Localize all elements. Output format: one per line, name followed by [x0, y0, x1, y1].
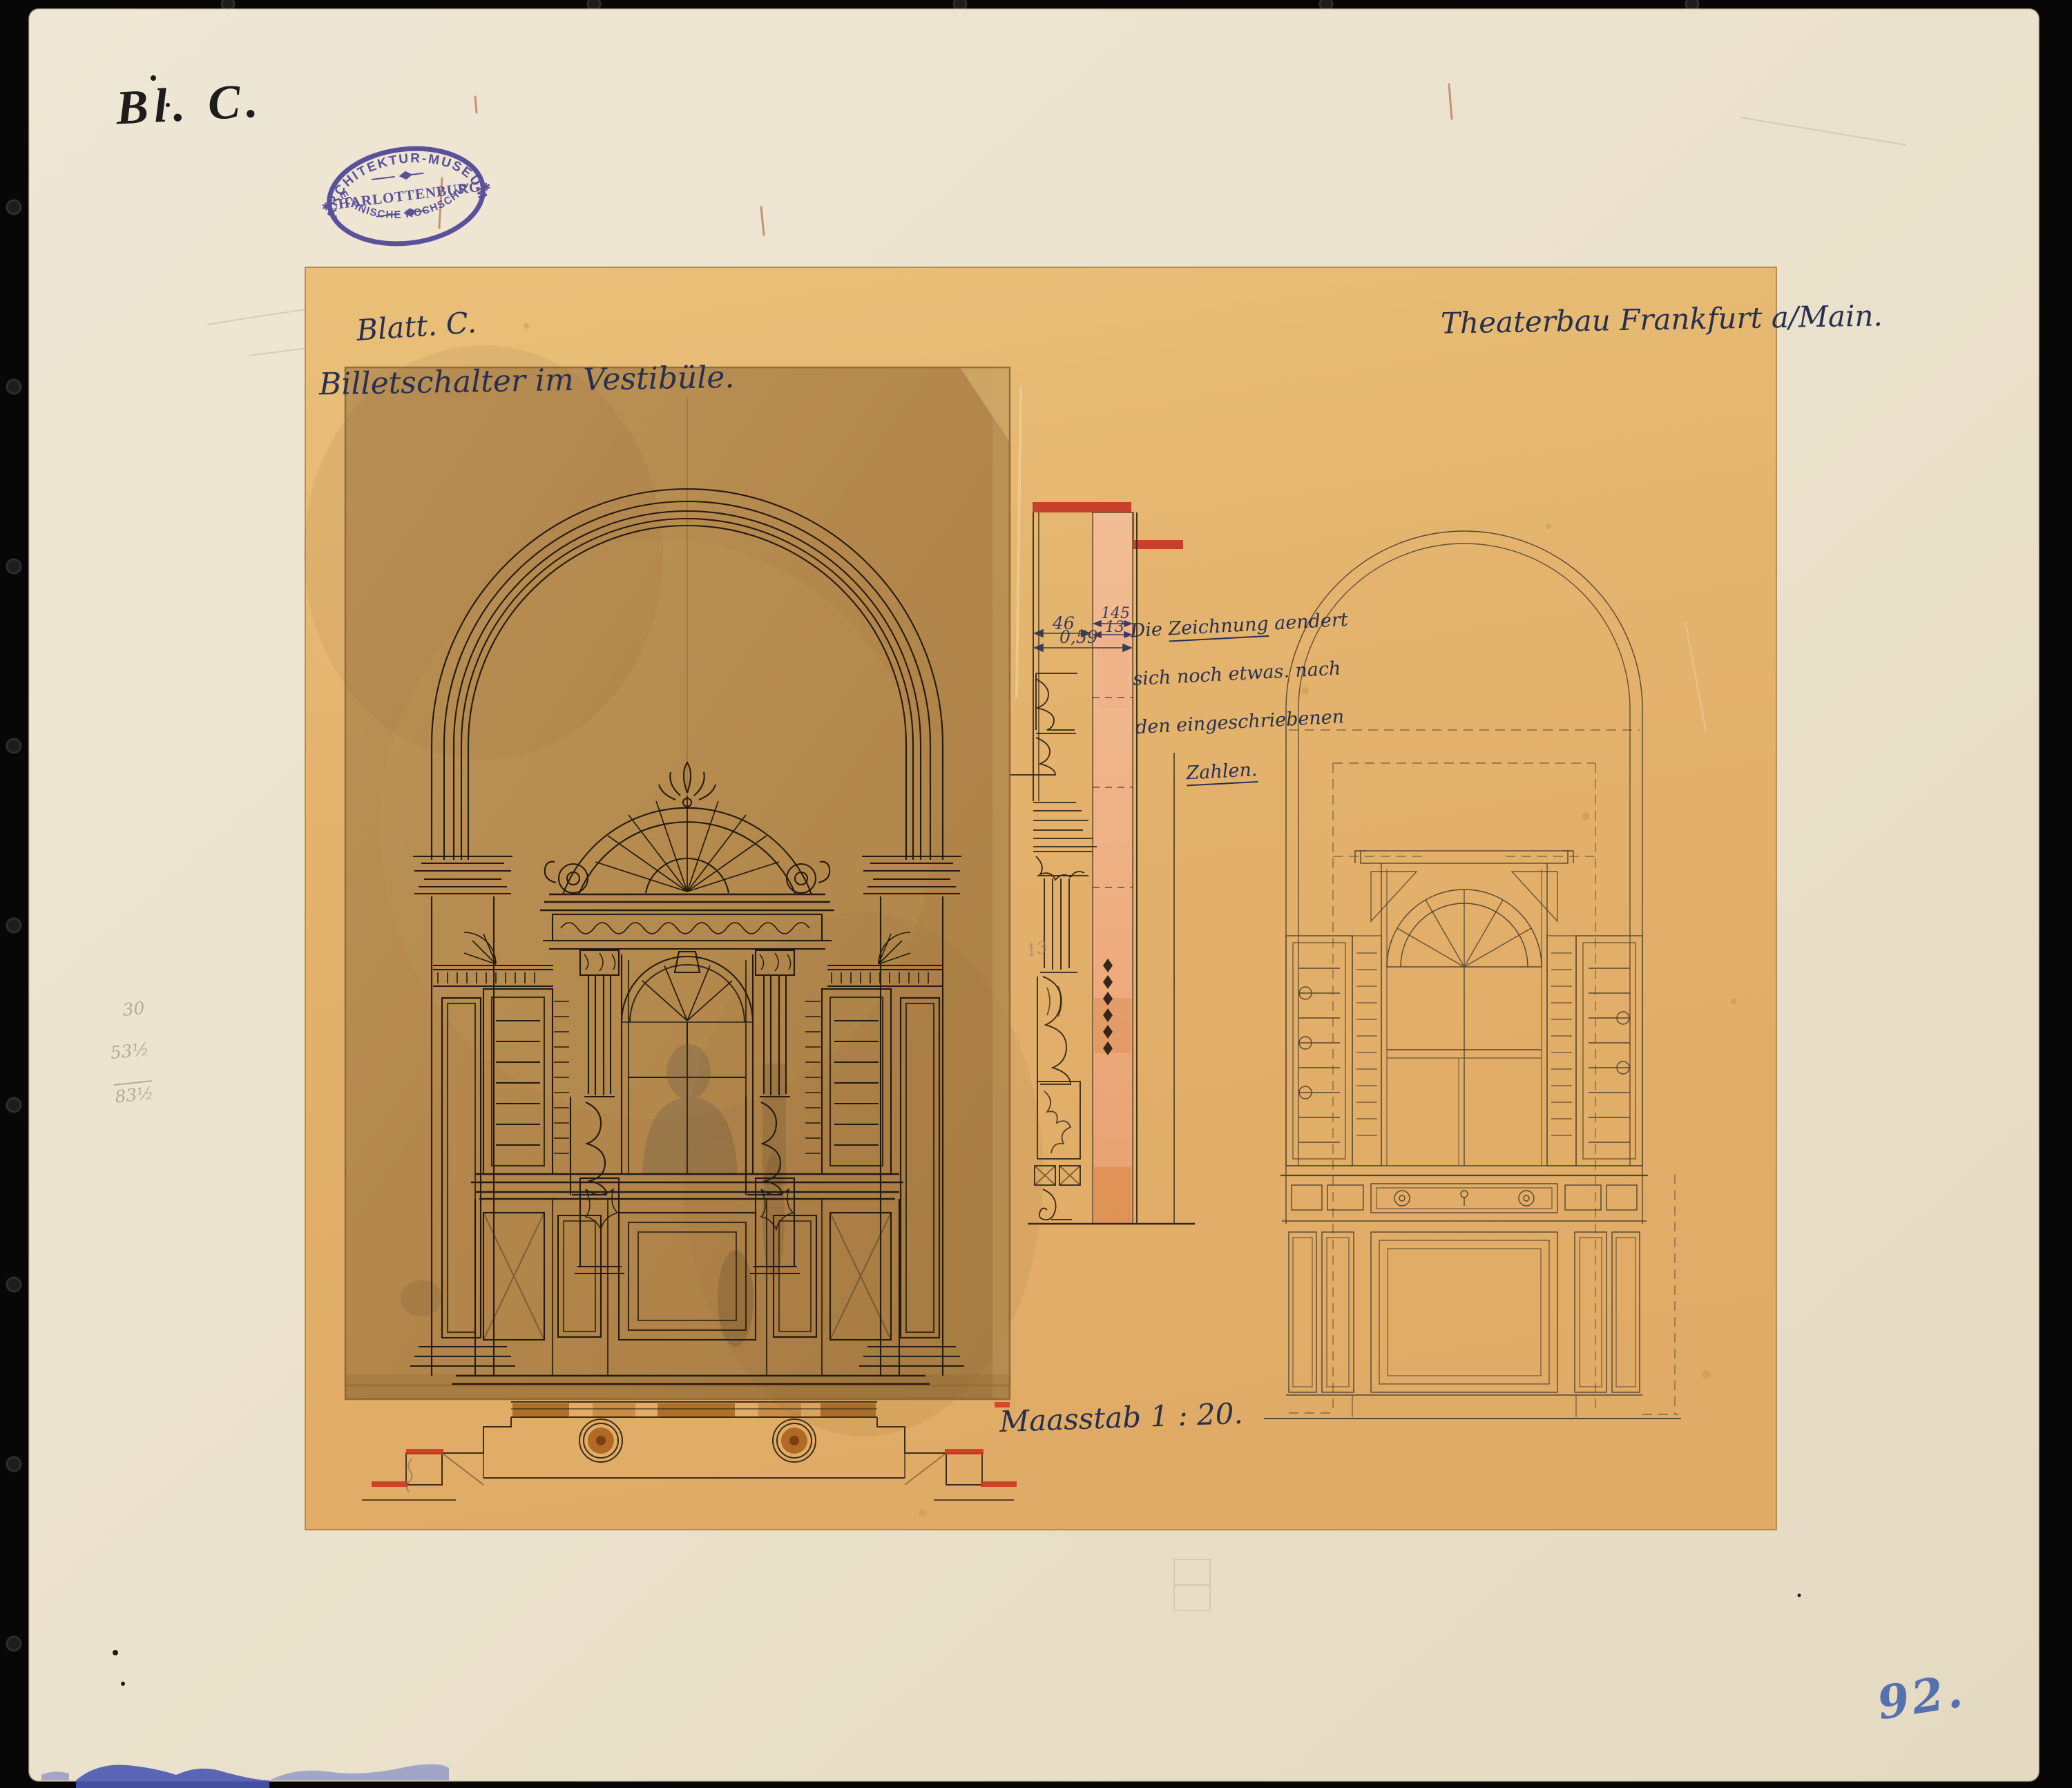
museum-stamp: ARCHITEKTUR-MUSEUM TECHNISCHE HOCHSCHULE… — [285, 115, 528, 287]
note-l4: Zahlen. — [1186, 759, 1258, 786]
note-l3: den eingeschriebenen — [1135, 706, 1345, 738]
stamp-star-right: ✱ — [481, 180, 492, 193]
revision-note: Die Zeichnung aendert sich noch etwas. n… — [1130, 608, 1356, 788]
note-l1a: Die — [1130, 619, 1169, 642]
scanned-archive-drawing: Bl. C. ARCHITEKTUR-MUSEUM TECHNISCHE HOC… — [0, 0, 2072, 1788]
pencil-calc-l1: 30 — [122, 998, 146, 1020]
corner-label: Bl. C. — [115, 73, 265, 136]
pencil-calc-l2: 53½ — [109, 1039, 150, 1063]
note-l1b: Zeichnung — [1168, 613, 1269, 642]
overlay-sheet — [304, 345, 1043, 1436]
stamp-star-left: ✱ — [321, 200, 332, 213]
pencil-calc-sum: 83½ — [114, 1080, 155, 1108]
dim-0-59: 0,59 — [1059, 627, 1098, 647]
sheet-title-line2: Billetschalter im Vestibüle. — [319, 360, 735, 402]
dim-13: 13 — [1105, 619, 1124, 636]
note-l1c: aendert — [1268, 609, 1349, 635]
note-l2: sich noch etwas. nach — [1133, 658, 1342, 691]
